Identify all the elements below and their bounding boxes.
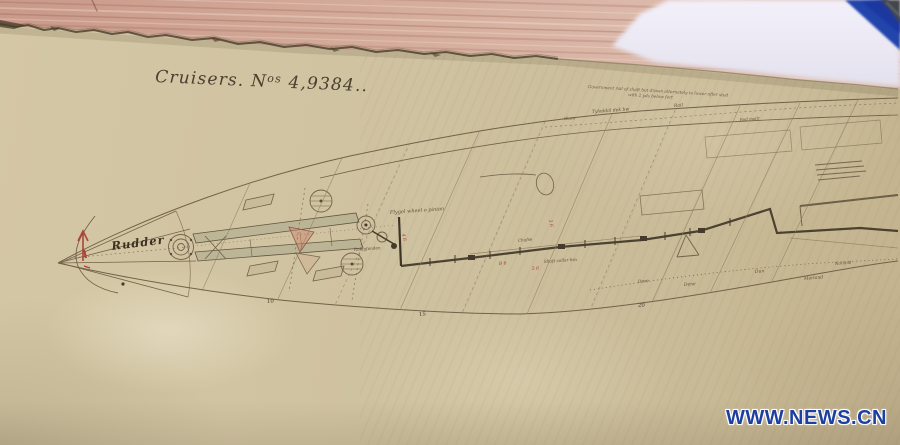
annotation-glace: Glace [564,115,576,121]
watermark: WWW.NEWS.CN [726,407,887,430]
hatch-outlines [480,120,882,215]
propeller-shaft-line [399,195,898,290]
deck-lines [58,98,898,263]
station-number-10: 10 [267,298,275,305]
annotation-norland: Norland [834,260,852,267]
vent-grating-circles [310,190,363,275]
annotation-flywheel: Flygel wheel o pinion [389,206,445,216]
annotation-dun: Dun [754,268,765,275]
red-mark-3: B 6 [498,260,507,267]
annotation-dore: Dore [637,278,650,285]
annotation-chafse: Chafse [518,236,534,243]
annotation-shaft-collar: Shaft collar box [544,257,578,264]
red-mark-2: 3 6 [547,219,554,227]
annotation-rod: Rod mollr [739,116,761,123]
annotation-rail: Rail [673,102,684,109]
rudder-label: Rudder [110,233,166,254]
drawing-title: Cruisers. Nos 4,9384.. [155,67,369,96]
annotation-rolagfenden: Rolagfenden [353,245,381,252]
photo-of-blueprint: Cruisers. Nos 4,9384.. Government rail o… [0,0,900,445]
station-number-15: 15 [419,311,427,318]
steering-gear [169,188,398,300]
station-numbers: 10 15 20 [267,298,646,318]
red-mark-4: 5 6 [532,265,540,272]
photo-scene: Cruisers. Nos 4,9384.. Government rail o… [0,0,900,445]
rudder-fan [58,211,196,297]
station-lines [202,100,858,314]
keel-line [58,261,898,314]
ship-profile-drawing [58,98,898,314]
station-number-20: 20 [638,302,646,309]
annotation-dene: Dene [683,281,697,288]
